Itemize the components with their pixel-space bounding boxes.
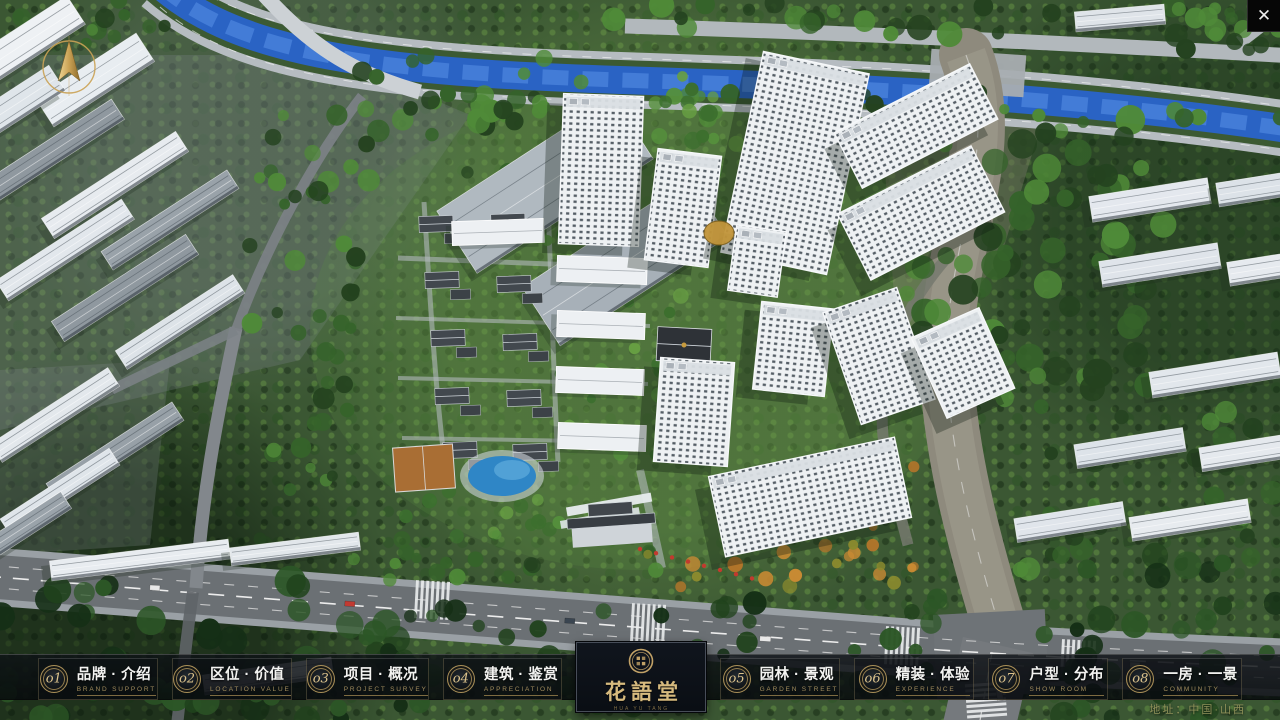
nav-number-badge-6: o6 [859,665,887,693]
nav-label: 一房 · 一景 [1163,663,1237,684]
close-icon: ✕ [1257,6,1271,26]
nav-item-project-overview[interactable]: o3 项目 · 概况PROJECT SURVEY [306,658,429,700]
nav-label: 项目 · 概况 [344,663,418,684]
compass-north-indicator [38,34,100,98]
bottom-nav-bar: o1 品牌 · 介绍BRAND SUPPORT o2 区位 · 价值LOCATI… [0,654,1280,700]
nav-sublabel: SHOW ROOM [1029,686,1103,696]
brand-seal-icon [628,648,654,679]
nav-sublabel: APPRECIATION [484,686,558,696]
close-button[interactable]: ✕ [1247,0,1280,32]
nav-item-architecture-appreciation[interactable]: o4 建筑 · 鉴赏APPRECIATION [443,658,563,700]
nav-sublabel: LOCATION VALUE [210,686,291,696]
nav-number-badge-2: o2 [173,665,201,693]
nav-number-badge-5: o5 [723,665,751,693]
nav-label: 园林 · 景观 [760,663,834,684]
nav-number-badge-8: o8 [1126,665,1154,693]
nav-sublabel: PROJECT SURVEY [344,686,428,696]
project-logo-caption: HUA YU TANG [614,706,669,712]
nav-item-floorplan-distribution[interactable]: o7 户型 · 分布SHOW ROOM [988,658,1108,700]
nav-sublabel: COMMUNITY [1163,686,1237,696]
nav-number-badge-7: o7 [992,665,1020,693]
nav-sublabel: EXPERIENCE [896,686,970,696]
project-logo-name: 花語堂 [600,680,683,704]
nav-item-garden-landscape[interactable]: o5 园林 · 景观GARDEN STREET [720,658,840,700]
nav-number-badge-1: o1 [40,665,68,693]
nav-item-interior-experience[interactable]: o6 精装 · 体验EXPERIENCE [854,658,974,700]
project-logo-panel[interactable]: 花語堂 HUA YU TANG [576,642,706,712]
masterplan-aerial-view[interactable] [0,0,1280,720]
project-address: 地址：中国·山西 [1149,701,1246,717]
nav-label: 户型 · 分布 [1029,663,1103,684]
nav-item-room-view[interactable]: o8 一房 · 一景COMMUNITY [1122,658,1242,700]
sales-presentation-window: ✕ o1 品牌 · 介绍BRAND SUPPORT o2 区位 · 价值LOCA… [0,0,1280,720]
nav-sublabel: GARDEN STREET [760,686,839,696]
nav-number-badge-3: o3 [307,665,335,693]
nav-label: 区位 · 价值 [210,663,284,684]
compass-icon [38,34,100,98]
nav-label: 建筑 · 鉴赏 [484,663,558,684]
masterplan-canvas [0,0,1280,720]
nav-number-badge-4: o4 [447,665,475,693]
nav-label: 精装 · 体验 [896,663,970,684]
nav-sublabel: BRAND SUPPORT [77,686,156,696]
nav-item-location-value[interactable]: o2 区位 · 价值LOCATION VALUE [172,658,292,700]
nav-item-brand-intro[interactable]: o1 品牌 · 介绍BRAND SUPPORT [38,658,158,700]
nav-label: 品牌 · 介绍 [77,663,151,684]
